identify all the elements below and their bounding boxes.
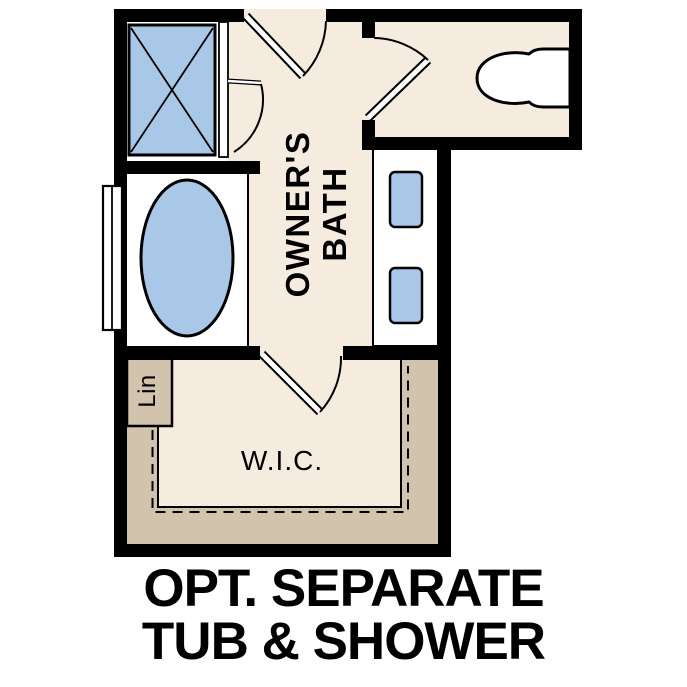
owners-bath-label: OWNER'S BATH [279, 131, 353, 298]
wall-top-left [114, 9, 244, 22]
wall-toilet-bottom [362, 137, 582, 150]
sink-top [390, 172, 422, 227]
wall-toilet-stub-top [362, 22, 375, 38]
floor-plan: OWNER'S BATH Lin W.I.C. OPT. SEPARATE TU… [0, 0, 687, 687]
caption: OPT. SEPARATE TUB & SHOWER [0, 562, 687, 668]
wall-wic-top-right [343, 346, 451, 360]
closet-shelf-right [401, 360, 438, 544]
wall-right-inner [438, 137, 451, 557]
wic-door-gap [260, 346, 343, 360]
toilet [477, 49, 570, 107]
owners-bath-line2: BATH [316, 131, 353, 298]
owners-bath-line1: OWNER'S [279, 131, 316, 298]
wall-shower-tub-divider [114, 161, 260, 174]
linen-label: Lin [134, 374, 162, 408]
wic-label: W.I.C. [241, 445, 323, 477]
sink-bottom [390, 268, 422, 323]
wall-bottom [114, 544, 451, 557]
wall-toilet-stub-bottom [362, 120, 375, 150]
caption-line2: TUB & SHOWER [0, 615, 687, 668]
entry-door-gap [244, 9, 326, 22]
wall-top-right [326, 9, 582, 22]
bathtub [141, 180, 233, 336]
wall-wic-top-left [114, 346, 260, 360]
caption-line1: OPT. SEPARATE [0, 562, 687, 615]
